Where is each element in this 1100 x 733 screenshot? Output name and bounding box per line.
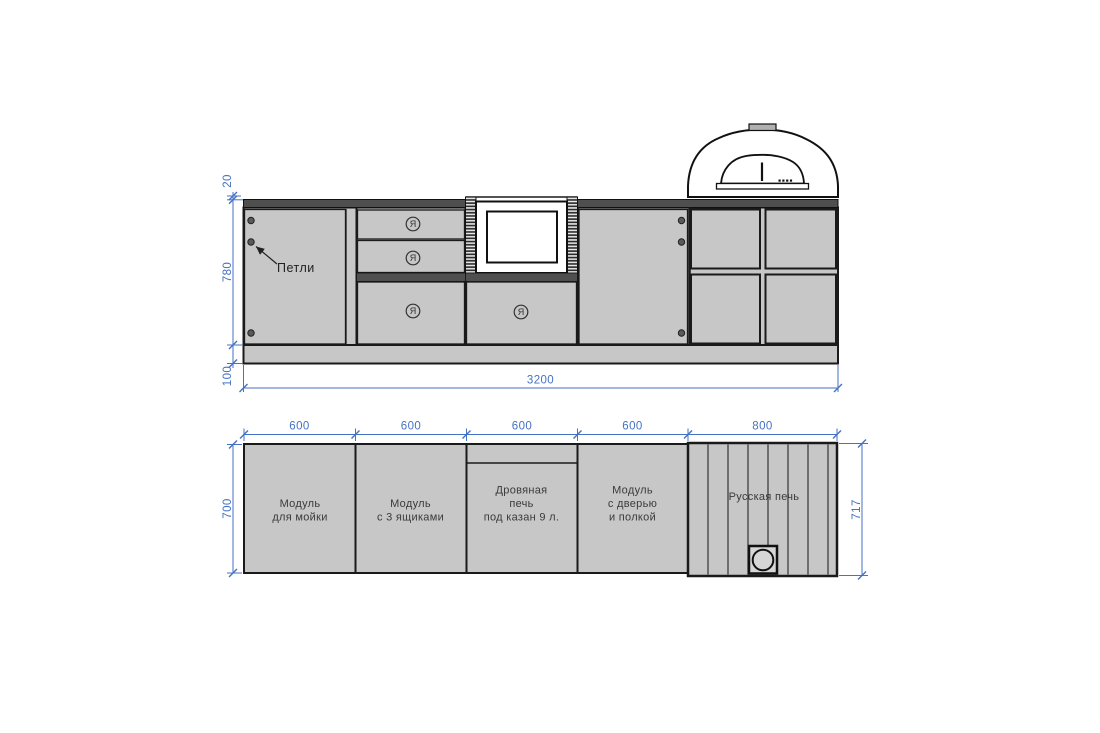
dimension-label-depth-left: 700 [222,498,234,518]
hinge-dot [678,330,684,336]
handle-symbol-letter: Я [410,253,417,263]
handle-symbol-letter: Я [518,307,525,317]
module-label-line: Русская печь [729,491,800,503]
countertop-strip-left [244,200,466,208]
module-label-line: с 3 ящиками [377,512,444,524]
grid-cell [691,210,760,269]
dimension-label-width: 600 [512,421,532,433]
dimension-label-width: 600 [401,421,421,433]
rail-strip [466,273,578,282]
module-label-line: Модуль [280,498,321,510]
module-label-line: под казан 9 л. [484,512,560,524]
hinge-dot [678,217,684,223]
module-label-line: с дверью [608,498,657,510]
plan-dimensions-top: 600 600 600 600 800 [240,421,841,442]
oven-mouth-ledge [717,184,809,190]
module-label-line: Модуль [612,485,653,497]
vent-dot [790,180,792,182]
width-dimension-labels: 600 600 600 600 800 [289,421,772,433]
hinges-callout-label: Петли [277,261,315,275]
handle-symbol-letter: Я [410,306,417,316]
dimension-label-plinth: 100 [222,366,234,386]
plan-view: Модуль для мойки Модуль с 3 ящиками Дров… [222,421,868,580]
drawing-page: Петли Я Я [0,0,1100,733]
plan-dimension-left: 700 [222,441,242,578]
hinge-dot [248,330,254,336]
dimension-label-width: 600 [622,421,642,433]
vent-dot [779,180,781,182]
stove-hatch-strip-left [466,197,477,273]
module-label-line: и полкой [609,512,656,524]
dimension-label-depth-right: 717 [851,499,863,519]
technical-drawing: Петли Я Я [0,0,1100,733]
handle-symbol-letter: Я [410,219,417,229]
elevation-dimensions-left: 20 780 100 [222,174,243,386]
chimney-circle [753,550,774,571]
dimension-label-total-width: 3200 [527,375,554,387]
rail-strip [357,273,466,282]
grid-cell [766,210,837,269]
chimney-cap [749,124,776,131]
module-label-line: печь [509,498,533,510]
elevation-dimension-total: 3200 [240,365,843,392]
russian-stove-plan [688,443,837,576]
hinge-dot [248,217,254,223]
grid-cell [766,275,837,344]
dimension-label-height: 780 [222,262,234,282]
module-label-line: для мойки [272,512,327,524]
plan-dimension-right: 717 [839,440,868,580]
stove-window-inner [487,212,557,263]
dimension-label-width: 600 [289,421,309,433]
module-label-line: Модуль [390,498,431,510]
module-label-line: Дровяная [496,485,548,497]
grid-cell [691,275,760,344]
front-elevation-view: Петли Я Я [222,124,842,392]
vent-dot [782,180,784,182]
stove-hatch-strip-right [567,197,578,273]
vent-dot [786,180,788,182]
hinge-dot [248,239,254,245]
dimension-label-countertop: 20 [222,174,234,188]
plinth [244,345,839,364]
dimension-label-width: 800 [752,421,772,433]
countertop-strip-right [578,200,839,208]
hinge-dot [678,239,684,245]
